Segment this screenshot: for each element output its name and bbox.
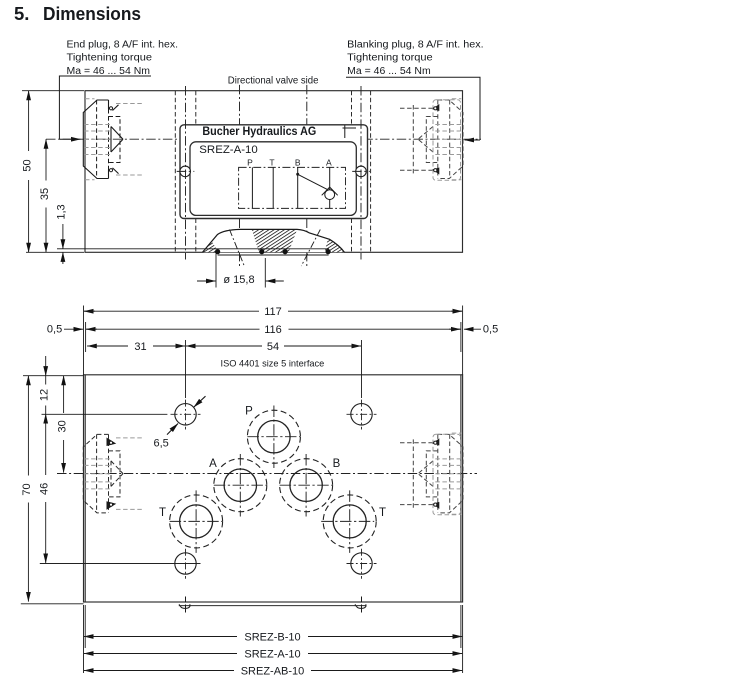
svg-text:Bucher Hydraulics AG: Bucher Hydraulics AG	[202, 126, 316, 138]
svg-text:Directional valve side: Directional valve side	[228, 75, 319, 86]
svg-text:ISO 4401 size 5 interface: ISO 4401 size 5 interface	[221, 359, 325, 369]
svg-text:T: T	[379, 507, 386, 519]
svg-text:Tightening torque: Tightening torque	[347, 53, 433, 64]
svg-text:P: P	[247, 157, 253, 167]
svg-text:T: T	[159, 507, 166, 519]
svg-text:6,5: 6,5	[154, 437, 169, 449]
svg-text:SREZ-A-10: SREZ-A-10	[199, 144, 257, 156]
svg-text:Ma = 46 ... 54 Nm: Ma = 46 ... 54 Nm	[347, 66, 431, 77]
svg-text:12: 12	[38, 389, 50, 401]
svg-text:50: 50	[21, 159, 33, 171]
svg-text:Dimensions: Dimensions	[43, 3, 141, 24]
svg-text:B: B	[295, 157, 301, 167]
svg-text:1,3: 1,3	[56, 204, 68, 219]
svg-text:Tightening torque: Tightening torque	[67, 53, 153, 64]
svg-text:117: 117	[264, 306, 282, 318]
svg-text:5.: 5.	[14, 3, 29, 24]
svg-text:31: 31	[134, 341, 146, 353]
svg-text:35: 35	[39, 188, 51, 200]
svg-text:SREZ-B-10: SREZ-B-10	[244, 631, 300, 643]
svg-text:P: P	[245, 406, 253, 418]
svg-text:46: 46	[38, 483, 50, 495]
svg-text:End plug, 8 A/F int. hex.: End plug, 8 A/F int. hex.	[67, 40, 179, 51]
svg-text:A: A	[209, 458, 217, 470]
svg-text:0,5: 0,5	[47, 324, 62, 336]
svg-text:T: T	[269, 157, 274, 167]
svg-text:Ma = 46 ... 54 Nm: Ma = 46 ... 54 Nm	[67, 66, 151, 77]
svg-text:0,5: 0,5	[483, 324, 498, 336]
svg-text:A: A	[326, 157, 332, 167]
svg-text:B: B	[333, 458, 341, 470]
svg-text:SREZ-A-10: SREZ-A-10	[244, 648, 300, 660]
svg-text:Blanking plug, 8 A/F int. hex.: Blanking plug, 8 A/F int. hex.	[347, 40, 483, 51]
svg-text:116: 116	[264, 324, 282, 336]
svg-text:70: 70	[21, 483, 33, 495]
svg-text:SREZ-AB-10: SREZ-AB-10	[241, 665, 305, 677]
svg-text:30: 30	[56, 420, 68, 432]
svg-text:ø 15,8: ø 15,8	[223, 274, 254, 286]
svg-text:54: 54	[267, 341, 279, 353]
